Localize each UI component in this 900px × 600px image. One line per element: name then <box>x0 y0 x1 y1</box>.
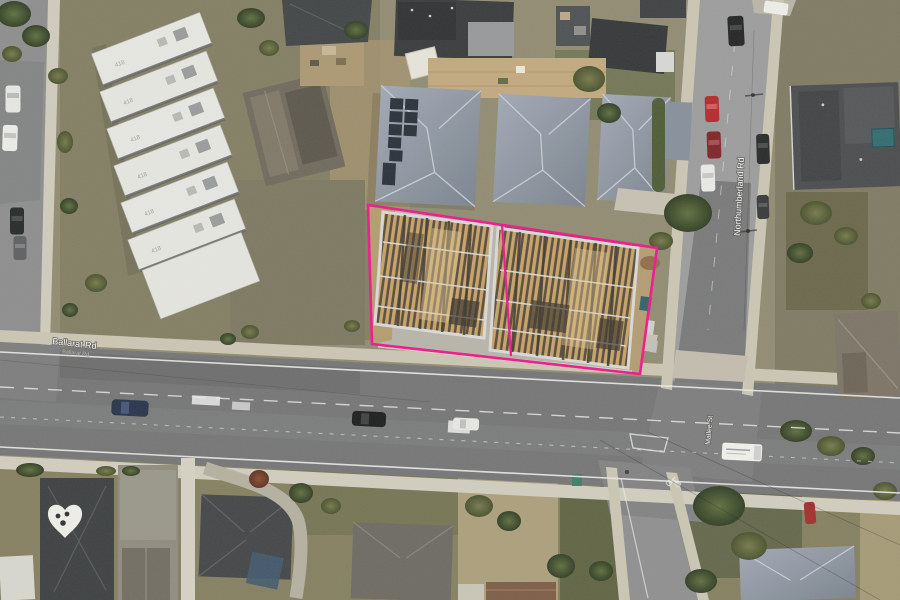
aerial-photo-canvas: 418 418 418 418 418 <box>0 0 900 600</box>
aerial-map-view: 418 418 418 418 418 <box>0 0 900 600</box>
color-cast-overlay <box>0 0 900 600</box>
